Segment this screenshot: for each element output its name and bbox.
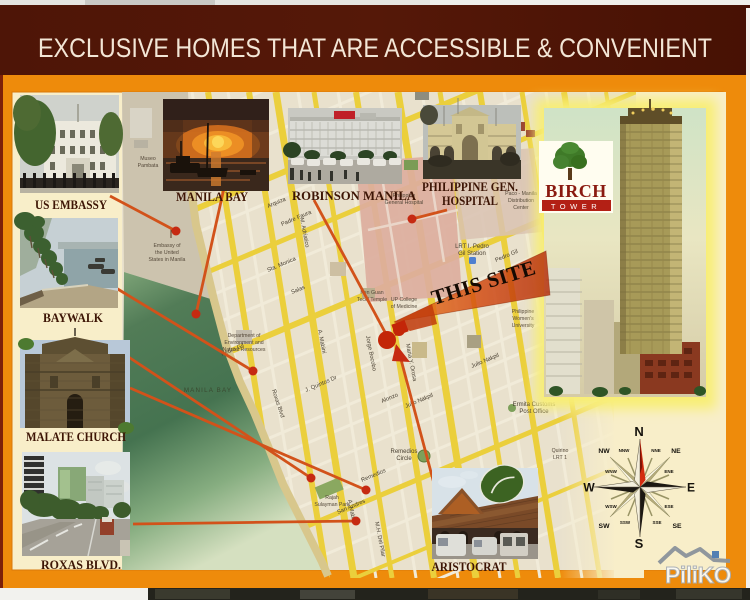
- svg-text:NNE: NNE: [651, 448, 661, 453]
- svg-text:Embassy of: Embassy of: [153, 243, 181, 249]
- svg-text:SSW: SSW: [620, 520, 631, 525]
- svg-text:BAYWALK: BAYWALK: [43, 310, 104, 325]
- svg-text:NW: NW: [598, 448, 610, 455]
- svg-text:Post Office: Post Office: [519, 409, 549, 415]
- svg-text:Tecel Temple: Tecel Temple: [357, 297, 387, 303]
- svg-text:HOSPITAL: HOSPITAL: [442, 193, 498, 208]
- svg-text:University: University: [512, 323, 535, 329]
- svg-text:BIRCH: BIRCH: [545, 181, 607, 201]
- svg-text:Environment and: Environment and: [224, 340, 263, 346]
- svg-text:UP College: UP College: [391, 297, 417, 303]
- svg-text:Remedios: Remedios: [390, 449, 417, 455]
- svg-text:Gil Station: Gil Station: [458, 251, 486, 257]
- svg-text:US EMBASSY: US EMBASSY: [35, 197, 108, 212]
- svg-text:PHILIPPINE GEN.: PHILIPPINE GEN.: [422, 179, 518, 194]
- svg-text:LRT 1: LRT 1: [553, 455, 567, 461]
- svg-text:E: E: [687, 481, 695, 495]
- svg-text:TOWER: TOWER: [551, 202, 601, 211]
- svg-text:ROBINSON MANILA: ROBINSON MANILA: [292, 188, 417, 203]
- svg-text:Rajah: Rajah: [325, 495, 339, 501]
- svg-text:W: W: [583, 481, 595, 495]
- svg-text:Department of: Department of: [228, 333, 261, 339]
- svg-text:ROXAS BLVD.: ROXAS BLVD.: [41, 557, 121, 572]
- svg-text:MALATE CHURCH: MALATE CHURCH: [26, 429, 126, 444]
- svg-text:States in Manila: States in Manila: [149, 257, 186, 263]
- svg-text:S: S: [635, 536, 644, 551]
- svg-text:Circle: Circle: [396, 456, 412, 462]
- svg-text:ESE: ESE: [664, 504, 673, 509]
- svg-text:NNW: NNW: [619, 448, 630, 453]
- svg-text:WSW: WSW: [605, 504, 617, 509]
- svg-text:ENE: ENE: [664, 469, 673, 474]
- svg-text:WNW: WNW: [605, 469, 617, 474]
- svg-text:EXCLUSIVE HOMES THAT ARE ACCES: EXCLUSIVE HOMES THAT ARE ACCESSIBLE & CO…: [38, 33, 712, 63]
- svg-text:of Medicine: of Medicine: [391, 304, 418, 310]
- svg-text:Distribution: Distribution: [508, 198, 534, 204]
- svg-text:LRT I. Pedro: LRT I. Pedro: [455, 244, 489, 250]
- svg-text:the United: the United: [155, 250, 179, 256]
- svg-text:Pambata: Pambata: [138, 163, 159, 169]
- svg-text:SSE: SSE: [652, 520, 661, 525]
- svg-text:Museo: Museo: [140, 156, 156, 162]
- svg-text:Center: Center: [513, 205, 529, 211]
- svg-text:Philippine: Philippine: [512, 309, 535, 315]
- svg-text:NE: NE: [671, 448, 681, 455]
- svg-text:MANILA BAY: MANILA BAY: [176, 189, 249, 204]
- svg-text:SW: SW: [599, 523, 611, 530]
- svg-text:ARISTOCRAT: ARISTOCRAT: [432, 559, 507, 574]
- svg-text:MANILA BAY: MANILA BAY: [184, 387, 232, 394]
- svg-text:N: N: [634, 424, 643, 439]
- svg-text:SE: SE: [672, 523, 682, 530]
- svg-text:Quirino: Quirino: [552, 448, 569, 454]
- svg-text:PiliKO: PiliKO: [665, 562, 731, 588]
- svg-text:Women's: Women's: [512, 316, 534, 322]
